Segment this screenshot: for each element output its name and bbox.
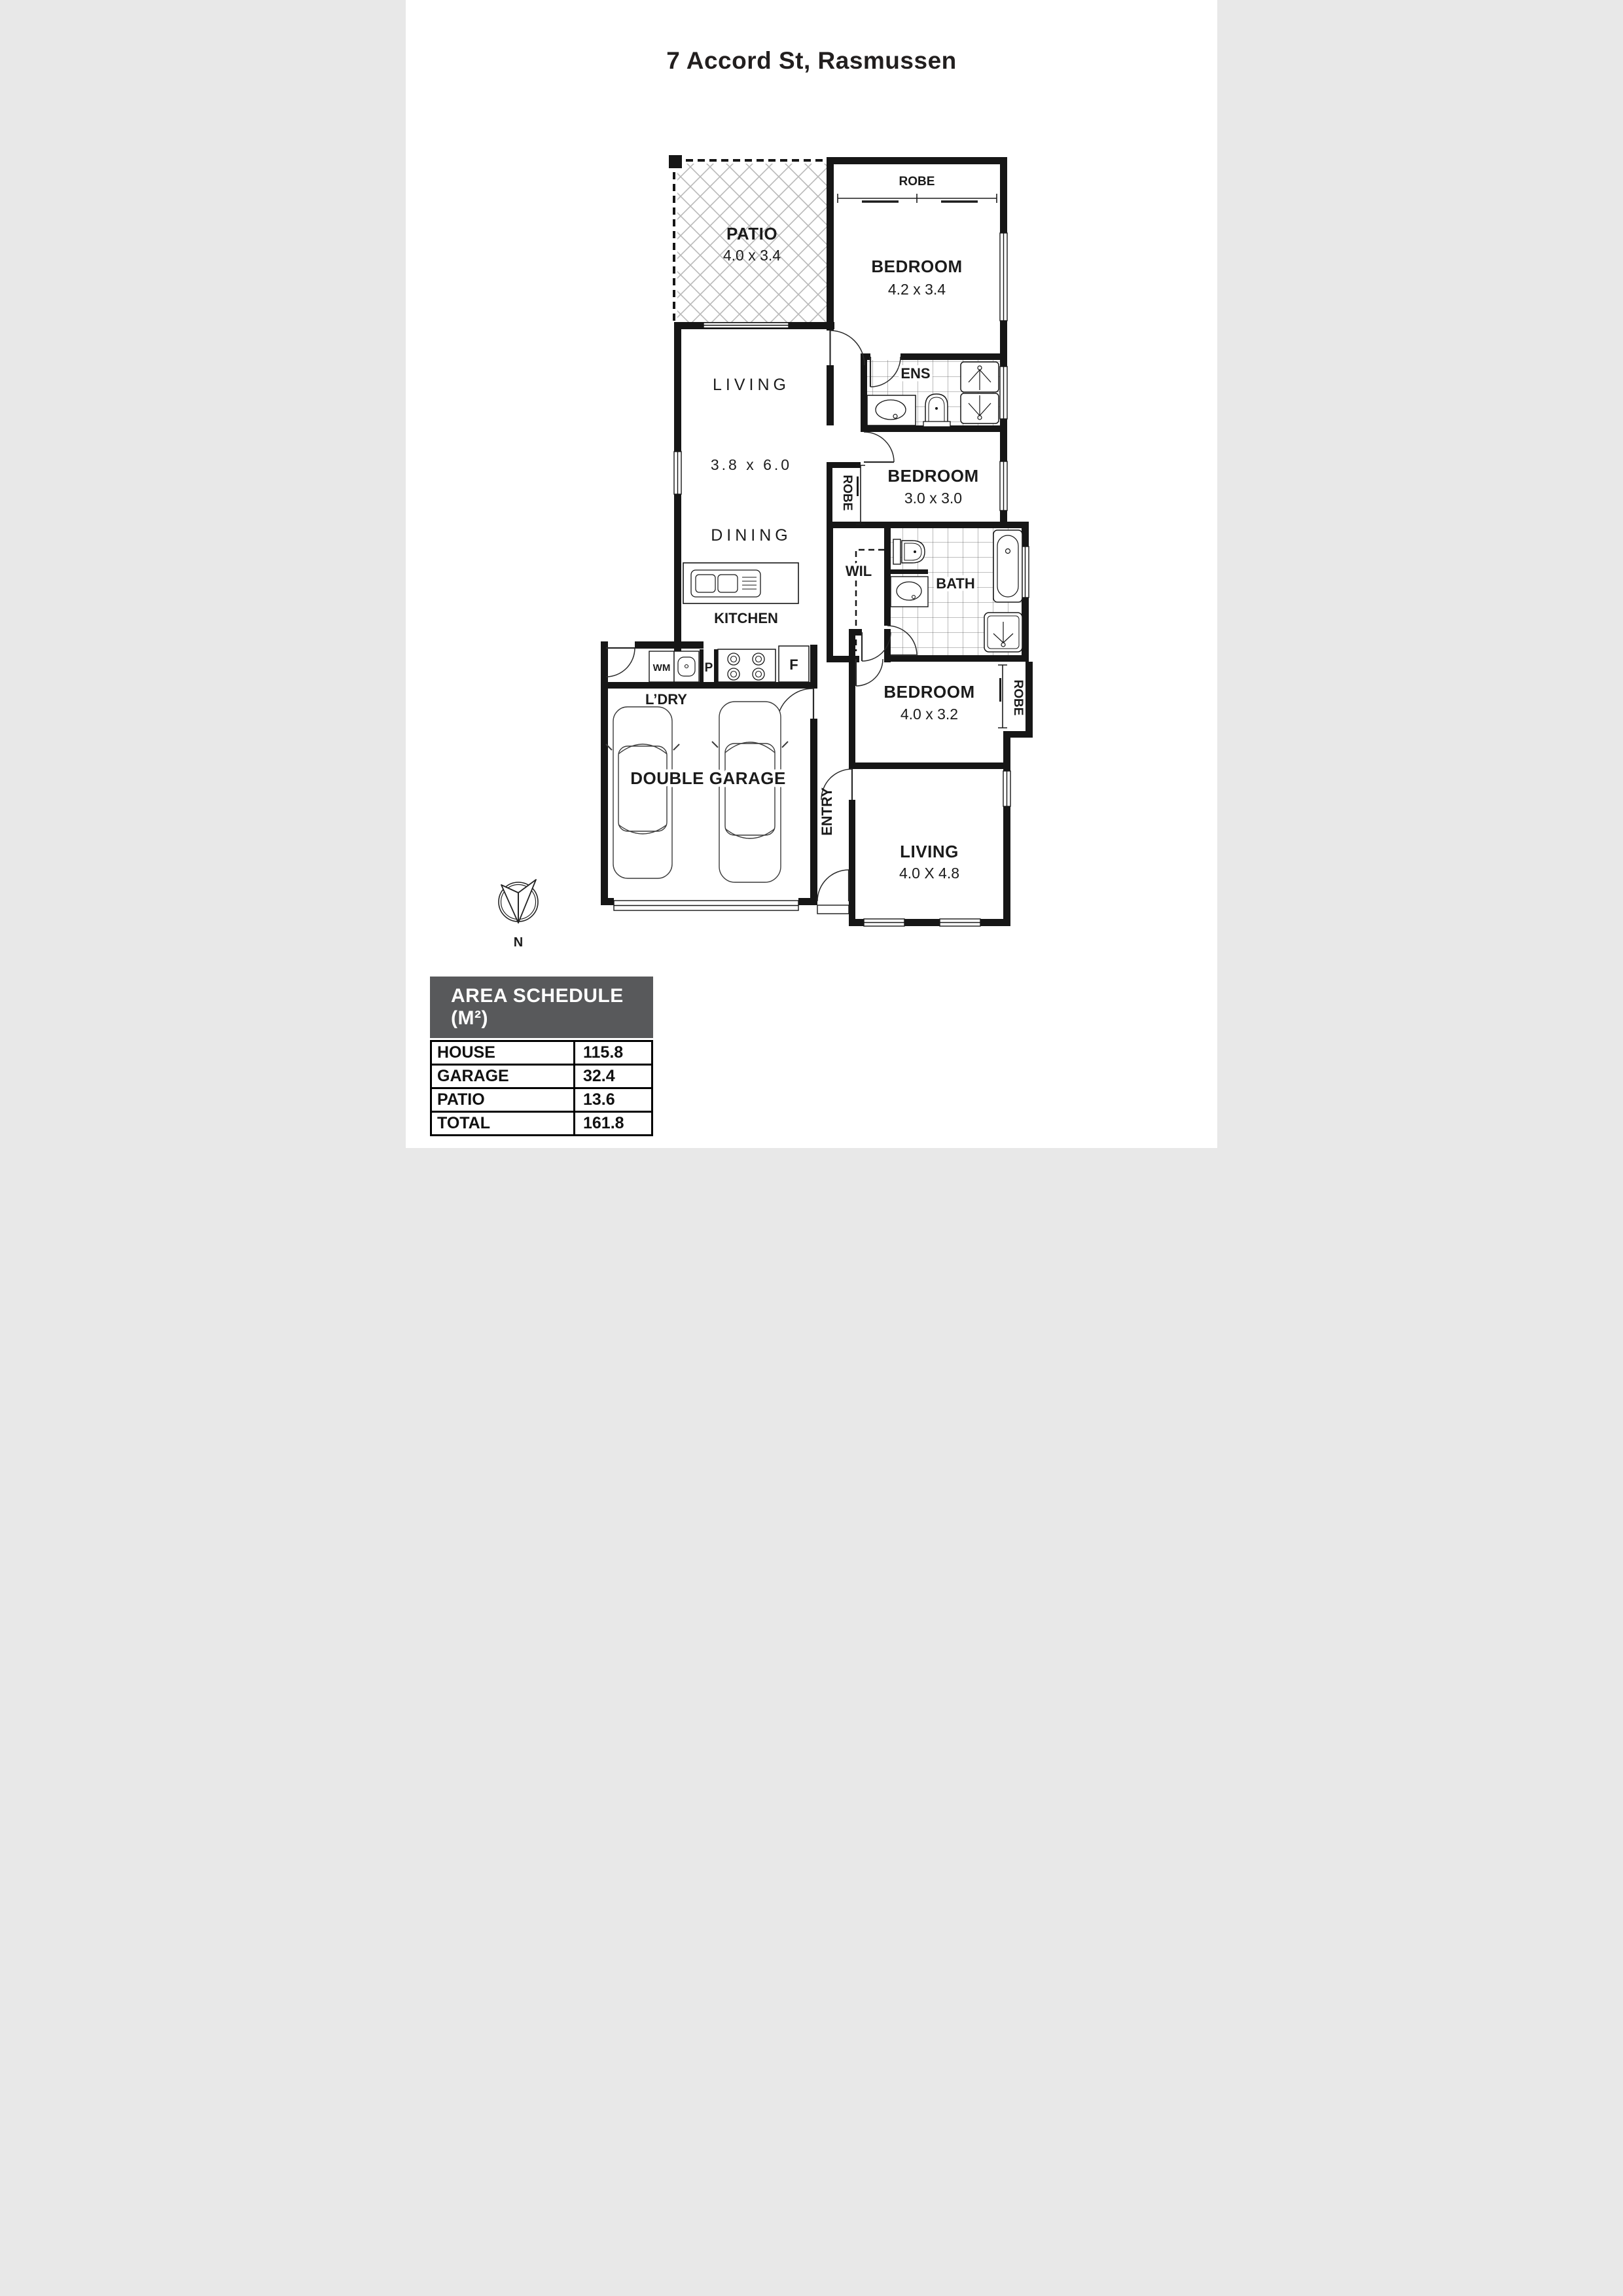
area-row-value: 13.6: [573, 1089, 651, 1111]
table-row: HOUSE 115.8: [432, 1042, 651, 1066]
laundry-tub-icon: [674, 651, 699, 682]
wall: [601, 641, 608, 905]
wall: [891, 569, 928, 574]
wall: [1003, 731, 1033, 738]
window-bedroom3: [1003, 771, 1010, 806]
living-main-label: LIVING: [713, 376, 790, 394]
ens-label: ENS: [901, 365, 930, 382]
patio-label: PATIO: [726, 224, 777, 243]
wall: [901, 353, 1007, 360]
wall: [601, 641, 606, 649]
wm-label: WM: [653, 662, 671, 673]
patio-dims: 4.0 x 3.4: [723, 247, 781, 264]
laundry-label: L’DRY: [645, 691, 687, 708]
wall: [827, 528, 833, 662]
kitchen-label: KITCHEN: [714, 610, 778, 626]
toilet-icon: [923, 394, 950, 427]
floor-plan-drawing: PATIO 4.0 x 3.4 ROBE BEDROOM 4.2 x 3.4 L…: [406, 0, 1217, 1148]
vanity-sink-icon: [891, 577, 928, 607]
area-row-value: 161.8: [573, 1113, 651, 1134]
window-living-rear-2: [940, 919, 980, 926]
bath-label: BATH: [936, 575, 974, 592]
bathtub-icon: [993, 530, 1022, 602]
area-row-label: TOTAL: [432, 1114, 573, 1133]
window-bedroom2: [1000, 461, 1007, 511]
entry-porch-step: [817, 905, 849, 914]
table-row: GARAGE 32.4: [432, 1066, 651, 1089]
door-bedroom1: [830, 331, 865, 365]
patio-sliding-door: [704, 323, 789, 328]
bedroom1-label: BEDROOM: [871, 257, 962, 276]
wall: [827, 322, 834, 331]
shower-icon: [961, 393, 999, 423]
area-row-label: GARAGE: [432, 1067, 573, 1086]
garage-door: [614, 901, 798, 910]
shower-icon: [961, 362, 999, 392]
robe1-rail: [838, 194, 997, 203]
bedroom3-label: BEDROOM: [883, 682, 974, 702]
car-icon: [712, 702, 788, 882]
bedroom1-dims: 4.2 x 3.4: [888, 281, 946, 298]
robe3-label: ROBE: [1011, 680, 1025, 716]
robe3-rail: [998, 665, 1007, 728]
door-garage-hall: [777, 689, 813, 719]
wall: [861, 353, 867, 432]
area-schedule-header: AREA SCHEDULE (M²): [430, 977, 653, 1038]
window-bedroom1: [1000, 233, 1007, 321]
garage-label: DOUBLE GARAGE: [630, 768, 786, 788]
kitchen-island-sink: [683, 563, 798, 603]
wall: [827, 157, 1007, 164]
garage-cars: [606, 702, 788, 882]
area-row-label: HOUSE: [432, 1043, 573, 1062]
wall: [700, 649, 704, 682]
car-icon: [606, 707, 679, 878]
wall: [884, 655, 1029, 662]
dining-label: DINING: [711, 526, 792, 545]
wall: [884, 522, 891, 626]
wall: [601, 682, 817, 689]
living-main-dims: 3.8 x 6.0: [711, 456, 792, 473]
window-living-main: [674, 452, 681, 494]
shower-icon: [984, 613, 1022, 652]
wall: [1026, 662, 1033, 734]
wall: [798, 898, 817, 905]
robe2-label: ROBE: [840, 475, 854, 511]
robe2-rail: [856, 465, 865, 524]
wall: [849, 629, 855, 766]
window-living-rear-1: [864, 919, 904, 926]
bedroom3-dims: 4.0 x 3.2: [901, 706, 958, 723]
bedroom2-label: BEDROOM: [887, 466, 978, 486]
wall: [827, 462, 832, 528]
wall: [635, 641, 704, 649]
area-row-value: 115.8: [573, 1042, 651, 1064]
wall: [849, 800, 855, 926]
door-wil: [856, 659, 883, 686]
wall: [827, 157, 834, 329]
area-schedule-table: HOUSE 115.8 GARAGE 32.4 PATIO 13.6 TOTAL…: [430, 1040, 653, 1136]
floorplan-page: 7 Accord St, Rasmussen: [406, 0, 1217, 1148]
wall: [810, 719, 817, 905]
door-laundry-external: [606, 648, 635, 677]
table-row: PATIO 13.6: [432, 1089, 651, 1113]
door-front-entry: [817, 870, 849, 901]
wall: [849, 762, 1010, 769]
wall: [827, 365, 834, 425]
area-row-label: PATIO: [432, 1090, 573, 1109]
stove-icon: [718, 649, 776, 682]
patio-corner-post: [669, 155, 682, 168]
toilet-icon: [893, 539, 925, 564]
pantry-label: P: [705, 661, 713, 675]
bedroom2-dims: 3.0 x 3.0: [904, 490, 962, 507]
living-rear-label: LIVING: [900, 842, 959, 861]
wil-label: WIL: [846, 563, 872, 579]
window-ens: [1000, 367, 1007, 419]
vanity-sink-icon: [867, 395, 916, 425]
living-rear-dims: 4.0 X 4.8: [899, 865, 959, 882]
wall: [827, 522, 1029, 528]
fridge-label: F: [789, 656, 798, 673]
page-title: 7 Accord St, Rasmussen: [406, 47, 1217, 75]
north-compass-icon: N: [499, 880, 538, 950]
entry-label: ENTRY: [819, 787, 835, 836]
robe1-label: ROBE: [899, 175, 935, 188]
wall: [714, 649, 718, 682]
north-label: N: [514, 935, 523, 950]
wall: [810, 645, 817, 689]
wall: [849, 762, 855, 769]
door-bedroom2: [864, 432, 894, 462]
area-row-value: 32.4: [573, 1066, 651, 1087]
table-row: TOTAL 161.8: [432, 1113, 651, 1134]
area-schedule: AREA SCHEDULE (M²) HOUSE 115.8 GARAGE 32…: [430, 977, 653, 1136]
